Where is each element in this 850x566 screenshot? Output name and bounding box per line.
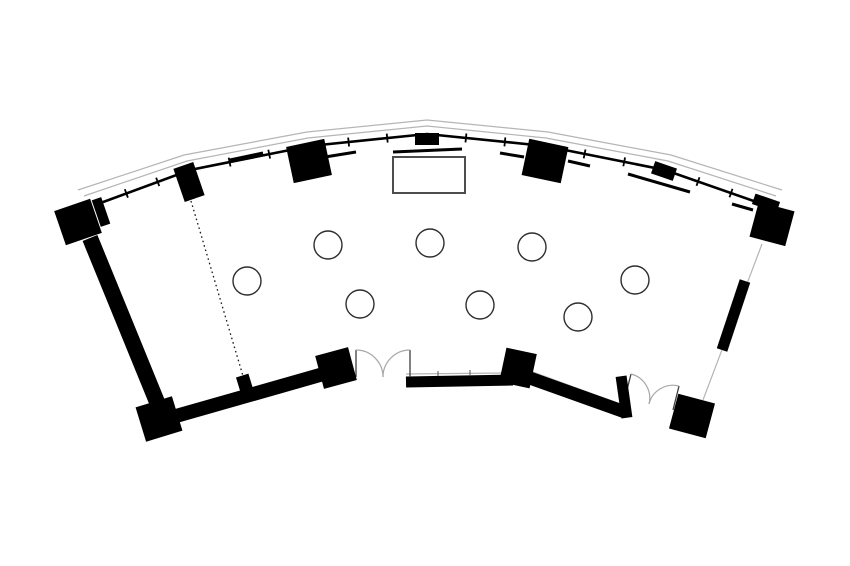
round-table — [621, 266, 649, 294]
col-bottom-left — [136, 396, 183, 442]
round-table — [518, 233, 546, 261]
door-main-entry-swing-arc — [383, 350, 410, 377]
col-window-apex — [415, 133, 439, 145]
window-sill-segment — [393, 149, 462, 152]
wall-right — [722, 281, 745, 350]
wall-left — [90, 238, 157, 402]
mullion-tick — [268, 150, 270, 159]
window-sill-segment — [325, 152, 356, 157]
door-side-entry-swing-arc — [649, 385, 679, 404]
col-window-4 — [651, 161, 677, 181]
floor-plan-drawing — [0, 0, 850, 566]
col-door1-left — [315, 347, 357, 389]
mullion-tick — [387, 134, 388, 143]
mullion-tick — [465, 133, 466, 142]
mullion-tick — [623, 157, 625, 166]
round-table — [346, 290, 374, 318]
mullion-tick — [584, 150, 586, 159]
round-table — [416, 229, 444, 257]
door-side-entry-swing-arc — [631, 374, 650, 404]
sill-line-bottom-center — [406, 373, 505, 374]
mullion-tick — [348, 138, 349, 147]
round-table — [233, 267, 261, 295]
door-main-entry-swing-arc — [356, 350, 383, 377]
window-sill-segment — [732, 204, 753, 210]
wall-bottom-center — [406, 380, 513, 382]
col-window-3 — [522, 139, 569, 184]
mullion-tick — [504, 137, 505, 146]
round-table — [466, 291, 494, 319]
round-table — [314, 231, 342, 259]
floor-plan-page — [0, 0, 850, 566]
col-top-right-main — [749, 202, 794, 246]
round-table — [564, 303, 592, 331]
window-sill-segment — [568, 161, 590, 166]
window-sill-segment — [500, 153, 524, 157]
col-window-2 — [286, 139, 332, 183]
wall-bottom-right — [527, 377, 625, 412]
stage-rect — [393, 157, 465, 193]
